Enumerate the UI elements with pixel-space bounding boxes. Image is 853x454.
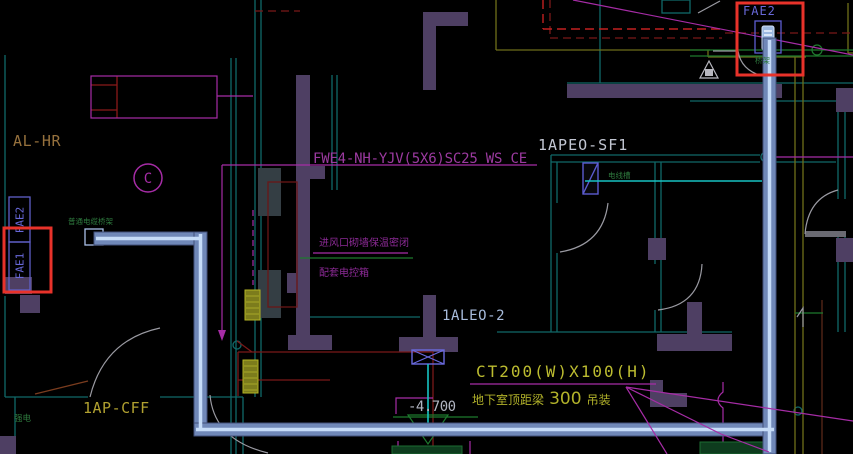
install-note-suffix: 吊装 [587, 393, 611, 407]
elevation-label: -4.700 [408, 399, 456, 415]
panel-sf1-label: 1APEO-SF1 [538, 136, 628, 154]
green-equipment-bar [392, 446, 462, 454]
panel-cff-label: 1AP-CFF [83, 399, 150, 417]
vent-note-line2: 配套电控箱 [319, 266, 369, 279]
wire-note-top: 桥架 [755, 55, 770, 65]
leader-arrowhead [218, 330, 226, 341]
install-note-value: 300 [549, 389, 581, 409]
wire-note-mid: 电线槽 [608, 170, 631, 180]
cad-canvas[interactable]: FAE2 FAE2 FAE1 AL-HR C FWE4-NH-YJV(5X6)S… [0, 0, 853, 454]
fae1-left-label: FAE1 [14, 253, 27, 280]
cable-trays [94, 38, 776, 454]
grid-bubble-label: C [144, 171, 152, 187]
olive-lines [496, 0, 853, 454]
vent-note-line1: 进风口砌墙保温密闭 [319, 236, 409, 249]
hatched-device [245, 290, 260, 320]
door-arc [805, 190, 838, 234]
cable-spec-label: FWE4-NH-YJV(5X6)SC25 WS CE [313, 151, 527, 167]
triangle-symbol [700, 61, 718, 78]
equipment-outline [91, 76, 217, 118]
install-note-prefix: 地下室顶距梁 [472, 392, 544, 407]
tray-size-label: CT200(W)X100(H) [476, 362, 651, 381]
panel-al-hr-label: AL-HR [13, 132, 62, 150]
panel-sf1-symbol [583, 163, 598, 194]
cad-viewport: FAE2 FAE2 FAE1 AL-HR C FWE4-NH-YJV(5X6)S… [0, 0, 853, 454]
install-note-label: 地下室顶距梁 300 吊装 [472, 389, 611, 409]
fae2-top-label: FAE2 [743, 4, 776, 18]
hatched-device [243, 360, 258, 393]
red-lines [35, 0, 853, 454]
green-equipment-bar [700, 442, 772, 454]
cyan-circuits [428, 181, 762, 428]
tray-note-left: 普通电缆桥架 [68, 216, 113, 226]
door-arc [560, 203, 608, 252]
door-arc [90, 328, 160, 397]
panel-aleo-label: 1ALEO-2 [442, 308, 505, 324]
room-note-bl: 强电 [14, 413, 32, 424]
